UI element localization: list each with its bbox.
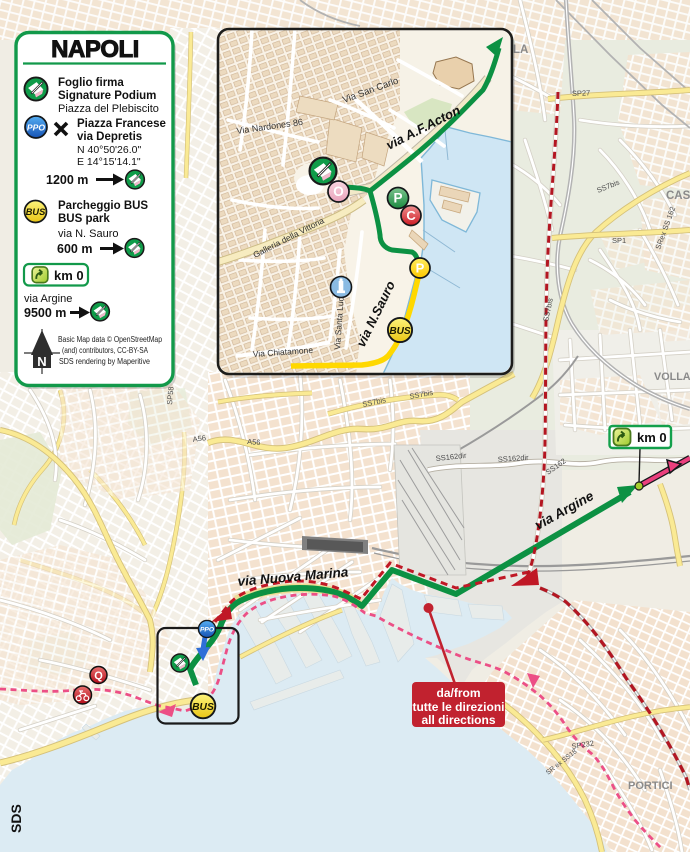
svg-text:SDS rendering by Maperitive: SDS rendering by Maperitive: [59, 357, 150, 366]
svg-text:N 40°50'26.0": N 40°50'26.0": [77, 144, 141, 156]
svg-text:LA: LA: [513, 44, 528, 56]
svg-text:via N. Sauro: via N. Sauro: [58, 228, 119, 240]
svg-text:PORTICI: PORTICI: [628, 780, 673, 792]
svg-text:km 0: km 0: [637, 430, 667, 445]
svg-text:Piazza Francese: Piazza Francese: [77, 118, 166, 130]
svg-text:CASA: CASA: [666, 190, 690, 202]
svg-text:A56: A56: [192, 433, 206, 444]
svg-text:1200 m: 1200 m: [46, 173, 88, 187]
svg-text:km 0: km 0: [54, 268, 84, 283]
svg-text:da/from: da/from: [436, 686, 480, 700]
svg-text:SP1: SP1: [612, 236, 626, 245]
svg-text:N: N: [37, 354, 46, 369]
svg-text:Parcheggio BUS: Parcheggio BUS: [58, 200, 148, 212]
svg-text:Foglio firma: Foglio firma: [58, 77, 124, 89]
svg-text:E 14°15'14.1": E 14°15'14.1": [77, 156, 141, 168]
svg-text:SDS: SDS: [8, 804, 24, 833]
svg-text:Piazza del Plebiscito: Piazza del Plebiscito: [58, 103, 159, 115]
svg-text:Signature Podium: Signature Podium: [58, 90, 156, 102]
svg-text:tutte le direzioni: tutte le direzioni: [412, 700, 504, 714]
svg-text:via Depretis: via Depretis: [77, 131, 142, 143]
svg-text:VOLLA: VOLLA: [654, 371, 690, 383]
svg-text:SP58: SP58: [165, 386, 176, 405]
svg-text:all directions: all directions: [421, 713, 495, 727]
svg-text:600 m: 600 m: [57, 242, 92, 256]
svg-text:A56: A56: [247, 437, 261, 447]
svg-text:via Argine: via Argine: [24, 293, 72, 305]
svg-text:BUS park: BUS park: [58, 213, 110, 225]
svg-text:9500 m: 9500 m: [24, 306, 66, 320]
svg-text:Basic Map data © OpenStreetMap: Basic Map data © OpenStreetMap: [58, 335, 163, 344]
svg-text:SP27: SP27: [572, 88, 591, 98]
svg-text:NAPOLI: NAPOLI: [51, 36, 139, 63]
svg-text:(and) contributors, CC-BY-SA: (and) contributors, CC-BY-SA: [62, 346, 149, 355]
